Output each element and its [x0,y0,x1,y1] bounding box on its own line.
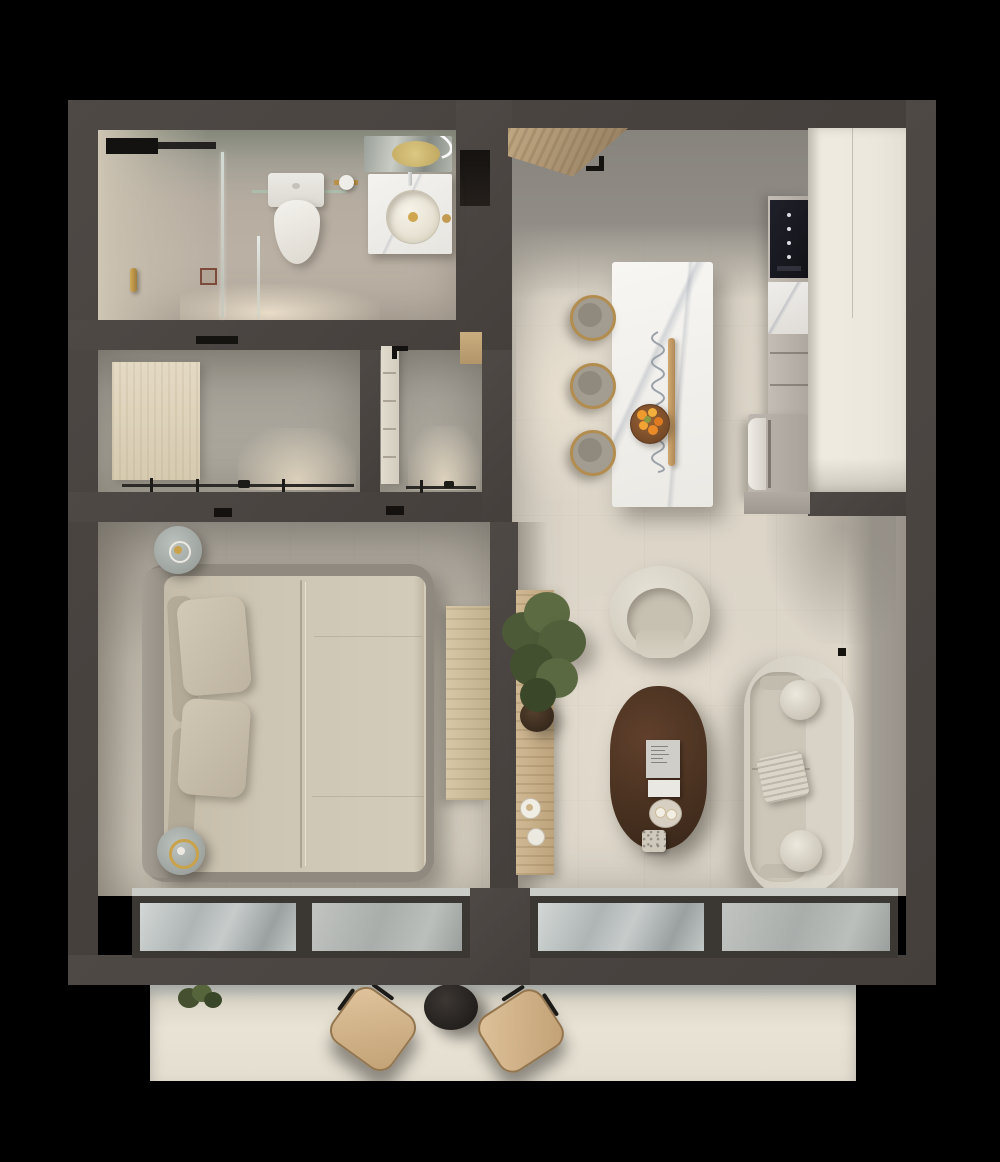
door-stop-mark [838,648,846,656]
closet-a-wardrobe-panel [112,362,200,480]
fruit-bowl [630,404,670,444]
door-hinge-mark [392,346,397,359]
closet-b-wood-ceiling-strip [460,332,482,364]
hanger [420,480,423,493]
window-pane [538,903,704,951]
hanger [150,478,153,492]
pendant-coil-light [644,330,670,474]
sink-drain-gold [408,212,418,222]
outer-wall-left [68,100,98,985]
balcony-side-table [424,984,478,1030]
sofa-bolster-pillow [780,680,820,720]
floor-plan-render [0,0,1000,1162]
drawer-line [770,352,808,354]
toilet-paper-holder [334,180,358,185]
built-in-oven [770,200,808,278]
door-track-mark [386,506,404,515]
towel-hook-gold [442,214,451,223]
sofa-bolster-pillow [780,830,822,872]
window-pane [722,903,890,951]
hanger [444,481,454,488]
bedroom-sliding-window [132,896,470,958]
marble-backsplash [768,282,810,334]
wall-stub-under-cabinet [808,490,906,516]
shower-glass-partition [257,236,260,318]
book [648,780,680,797]
bedroom-wood-bench [446,606,490,800]
wall-closet-east [482,350,512,522]
ceiling-vent [106,138,158,154]
led-mirror [364,136,452,172]
floor-cup [520,798,541,819]
balcony-plant [178,984,226,1014]
wall-between-closets [360,350,380,492]
ceiling-vent [158,142,216,149]
sofa-textured-pillow [756,750,811,805]
appliance-microwave [748,414,808,494]
bar-stool [570,295,616,341]
kitchen-shadow-patch [766,514,896,644]
curved-armchair [610,566,710,658]
floor-cup [527,828,545,846]
hanger [282,479,285,492]
pendant-wood-bar [668,338,675,466]
wall-window-pillar [470,888,530,985]
brass-door-handle [130,268,137,292]
closet-b-hanging-rail [406,486,476,489]
serving-tray [649,799,682,828]
vessel-sink [386,190,440,244]
closet-a-ceiling-track [196,336,238,344]
speckled-coaster [642,830,666,852]
window-pane [312,903,462,951]
wall-bathroom-south [68,320,512,350]
bar-stool [570,363,616,409]
tall-pantry-cabinet [808,128,906,492]
wall-bathroom-east [456,100,512,350]
bed-pillow [176,595,252,697]
closet-b-drawer-unit [381,346,399,484]
door-track-mark [214,508,232,517]
kitchen-counter-end [744,492,810,514]
wall-bedroom-north [68,492,512,522]
hanger [238,480,250,488]
front-door-handle [599,156,604,171]
hanger [196,479,199,492]
bed-pillow [177,698,252,799]
nightstand-lamp [154,526,202,574]
drawer-line [770,384,808,386]
closet-a-light-patch [238,428,356,490]
bathroom-light-patch [180,284,380,320]
wall-niche [460,150,490,206]
nightstand-lamp [157,827,205,875]
shower-glass-partition [221,152,224,318]
bar-stool [570,430,616,476]
book-stack [646,740,680,778]
outer-wall-right [906,100,936,985]
living-sliding-window [530,896,898,958]
potted-tree [498,586,598,746]
floor-drain [200,268,217,285]
window-pane [140,903,296,951]
